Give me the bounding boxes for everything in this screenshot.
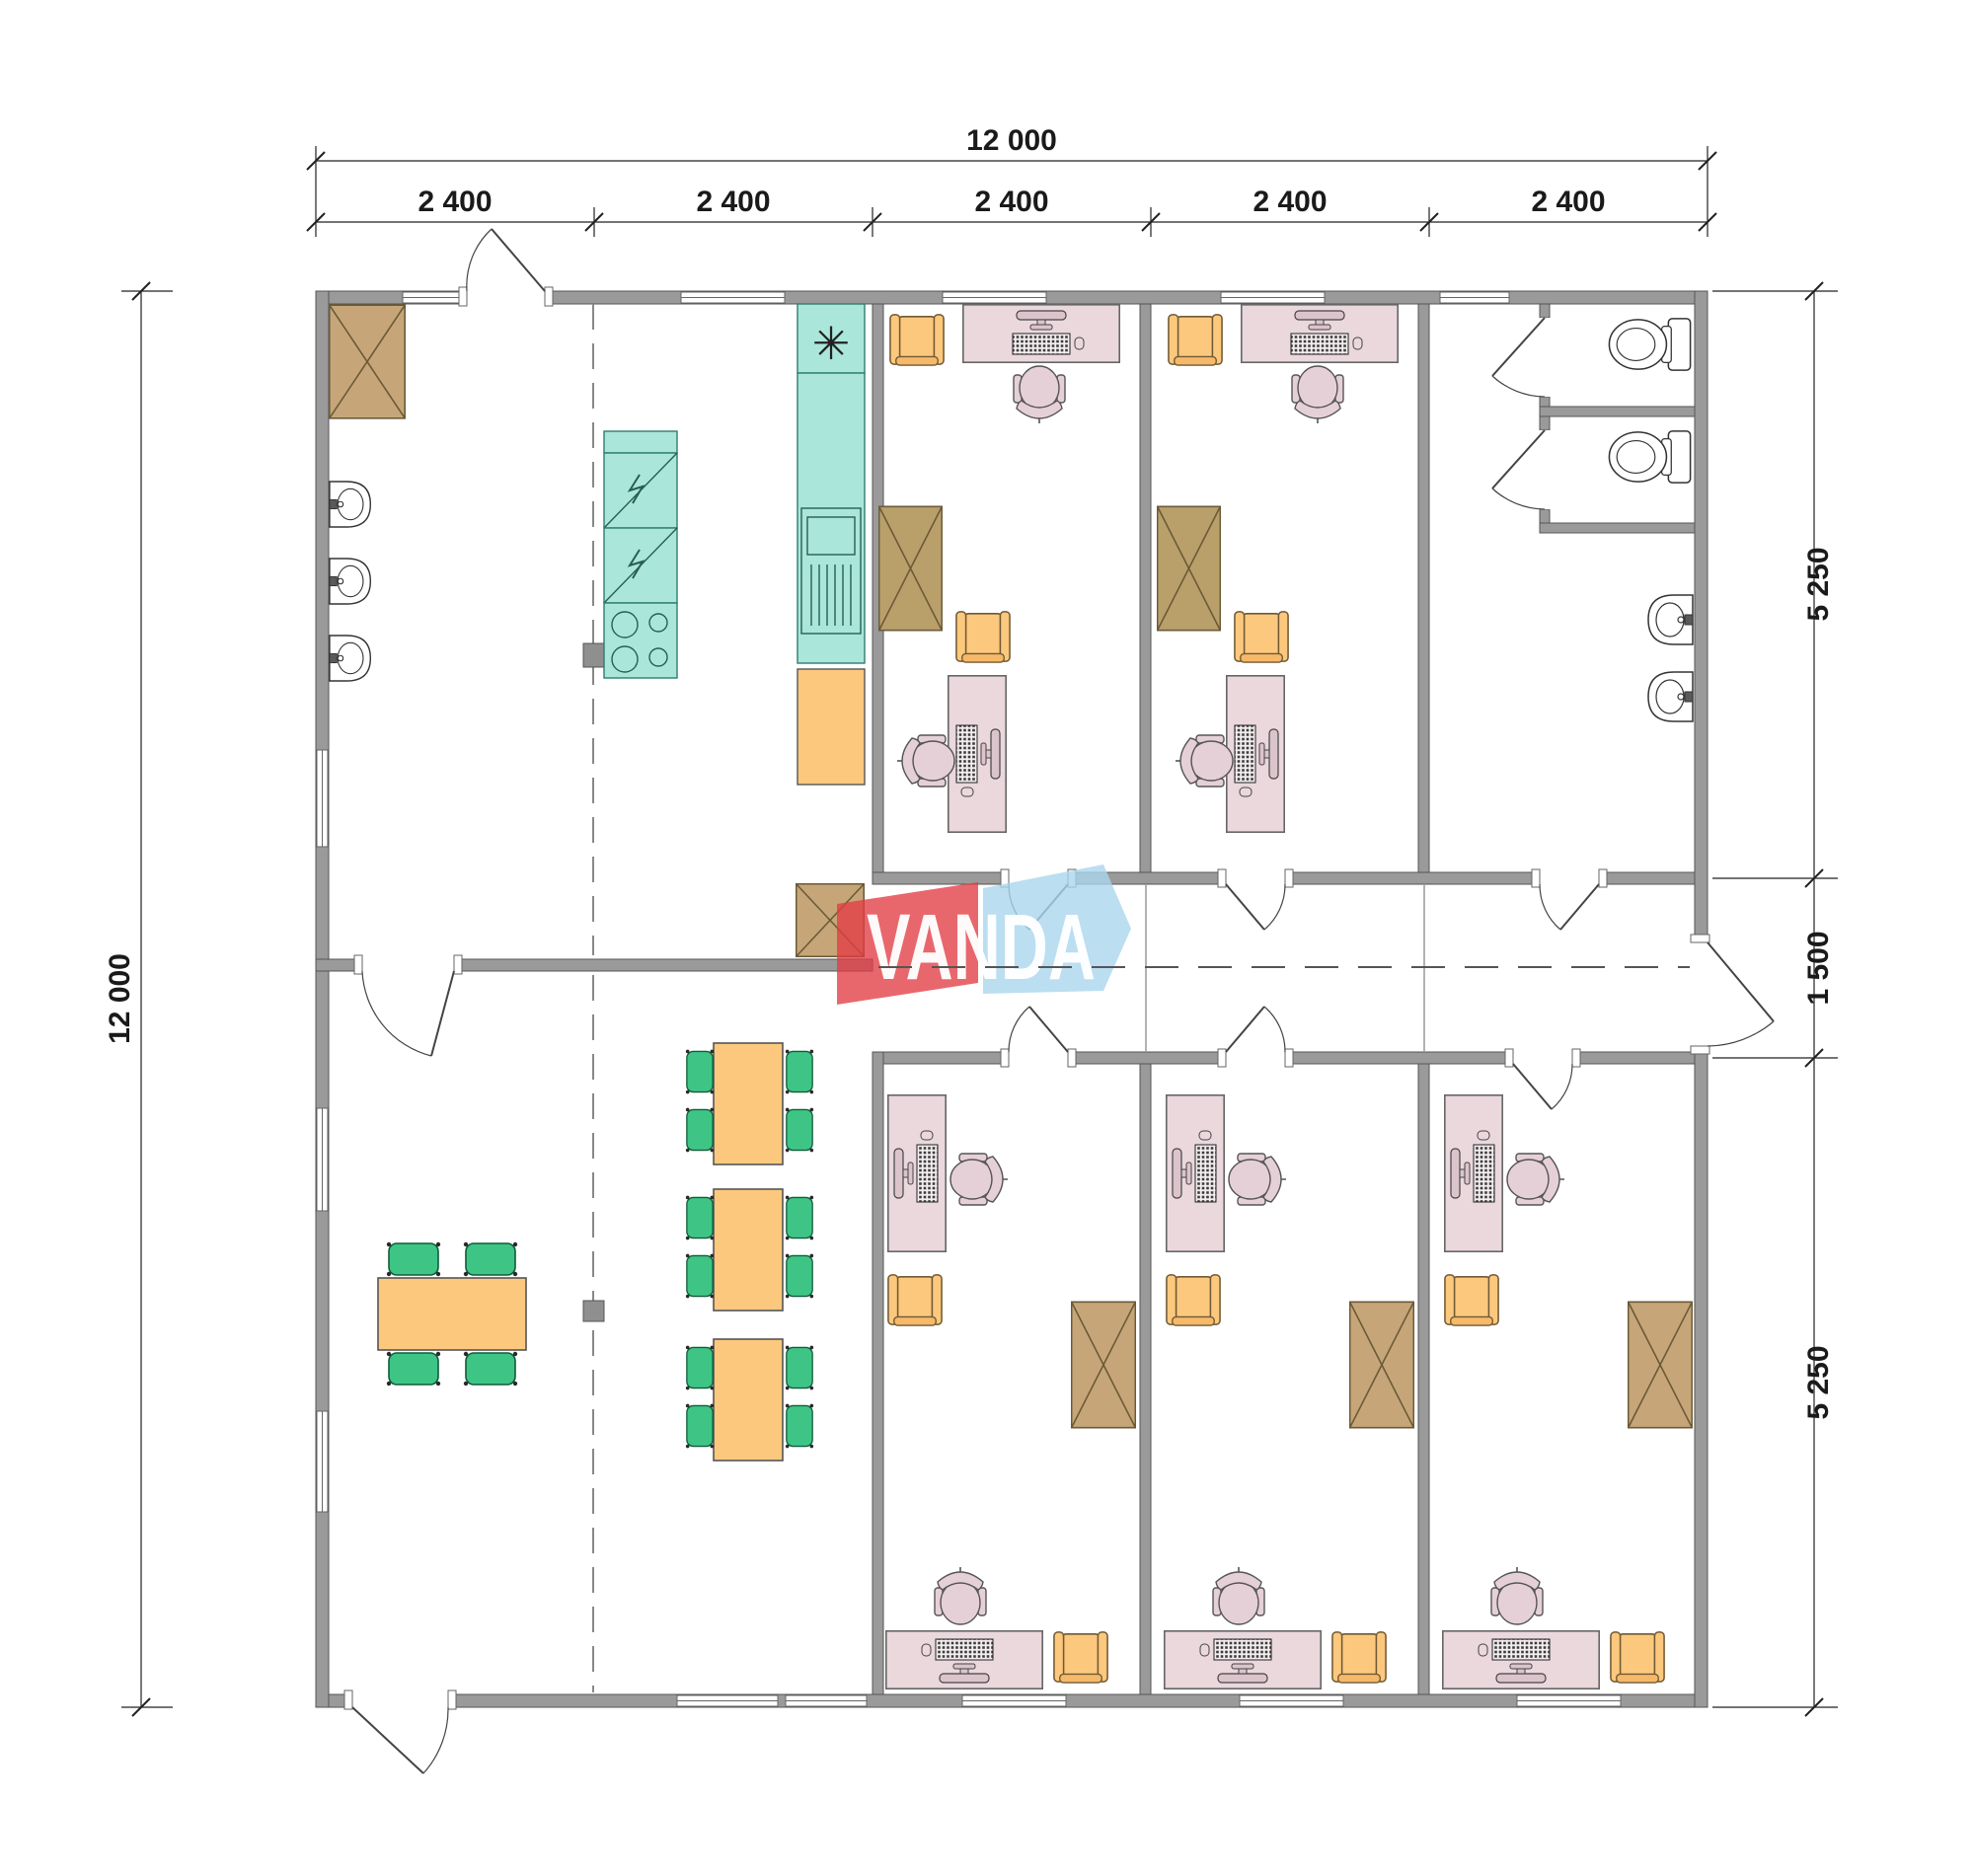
dim-left-total-label: 12 000 [104,953,136,1044]
room-dining [378,1043,813,1461]
dining-chair [387,1242,440,1276]
visitor-armchair [956,612,1010,662]
office-chair [1507,1154,1564,1205]
vanda-logo-text: VANDA [867,895,1096,1000]
wc-stall-bottom-wall [1540,523,1695,533]
office-chair [1292,366,1343,423]
dining-table [714,1189,783,1311]
washbasin [1648,672,1693,721]
window [786,1695,867,1706]
computer-desk [963,305,1119,362]
office-chair [1213,1567,1264,1624]
dining-chair [786,1346,813,1390]
window [1440,292,1509,303]
visitor-armchair [1611,1632,1664,1683]
dining-chair [686,1404,714,1449]
dim-module-label: 2 400 [418,186,492,218]
window [677,1695,778,1706]
visitor-armchair [890,315,944,365]
entry-door-kitchen [467,229,545,291]
dining-chair [686,1050,714,1094]
toilet [1609,319,1690,370]
dining-chair [686,1254,714,1299]
wall-officeD-officeE [1140,1064,1151,1694]
visitor-armchair [1169,315,1222,365]
floor-plan-page: ✳ [0,0,1974,1876]
wardrobe-crossed-box [1158,506,1221,630]
window [1240,1695,1343,1706]
stove [604,603,677,678]
column-marker [583,643,605,667]
doors [352,229,1774,1773]
wc-stall-front-wall [1540,304,1550,318]
wardrobe-crossed-box [1629,1302,1693,1427]
door-office-d [1009,1007,1068,1052]
cabinet-crossed-box [330,305,405,418]
room-sanitary [1492,318,1693,721]
column-marker [583,1301,604,1321]
window [1221,292,1325,303]
dining-table [378,1278,526,1350]
wc-stall-doors [1492,318,1545,509]
office-chair [897,735,954,787]
window [681,292,785,303]
door-office-e [1226,1007,1285,1052]
dining-chair [464,1242,517,1276]
window [317,1108,328,1211]
wc-stall-divider-wall [1540,407,1695,416]
office-chair [1176,735,1233,787]
vanda-logo: VANDA [837,864,1131,1005]
computer-desk [1242,305,1398,362]
door-kitchen-dining [362,971,454,1056]
visitor-armchair [1445,1275,1498,1325]
computer-desk [949,676,1006,832]
dining-chair [464,1352,517,1386]
washbasin [330,559,370,604]
window [1517,1695,1621,1706]
dining-chair [786,1050,813,1094]
main-entrance-door [1708,942,1774,1046]
dining-table [714,1043,783,1164]
dining-chair [387,1352,440,1386]
wardrobe-crossed-box [879,506,943,630]
dining-chair [686,1346,714,1390]
dim-top-total-label: 12 000 [966,124,1057,157]
kitchen-cabinet [604,431,677,453]
visitor-armchair [1332,1632,1386,1683]
dim-right-label: 5 250 [1802,1345,1835,1419]
window [317,750,328,847]
dim-module-label: 2 400 [1253,186,1327,218]
computer-desk [888,1095,946,1251]
computer-desk [1443,1631,1599,1688]
dining-chair [686,1108,714,1153]
wardrobe-crossed-box [1350,1302,1414,1427]
window [943,292,1046,303]
toilet [1609,431,1690,483]
refrigerator [604,453,677,528]
dim-module-label: 2 400 [1531,186,1605,218]
refrigerator [604,528,677,603]
office-chair [1014,366,1065,423]
kitchen-counter-column: ✳ [797,304,865,663]
extractor-star-icon: ✳ [812,318,851,369]
computer-desk [1167,1095,1224,1251]
room-office-e [1165,1095,1414,1688]
dim-right-label: 1 500 [1802,931,1835,1005]
office-chair [1491,1567,1543,1624]
wardrobe-crossed-box [1072,1302,1136,1427]
door-office-b [1226,884,1285,930]
dining-chair [786,1196,813,1240]
visitor-armchair [888,1275,942,1325]
floor-plan-drawing: ✳ [0,0,1974,1876]
door-office-f [1513,1064,1572,1109]
visitor-armchair [1235,612,1288,662]
room-office-a [879,305,1120,832]
dining-table [714,1339,783,1461]
washbasin [330,636,370,681]
dim-module-label: 2 400 [696,186,770,218]
computer-desk [1165,1631,1321,1688]
window [403,292,464,303]
door-sanitary [1540,884,1599,930]
wall-officeE-officeF [1418,1064,1429,1694]
window [317,1411,328,1512]
computer-desk [886,1631,1042,1688]
room-office-b [1158,305,1399,832]
washbasin [330,482,370,527]
office-chair [935,1567,986,1624]
kitchen-side-table [797,669,865,785]
exit-door-dining [352,1707,448,1773]
computer-desk [1227,676,1284,832]
computer-desk [1445,1095,1502,1251]
room-office-f [1443,1095,1693,1688]
office-chair [950,1154,1008,1205]
washbasin [1648,595,1693,644]
wall-officeA-officeB [1140,304,1151,884]
dining-chair [786,1254,813,1299]
dim-right-label: 5 250 [1802,547,1835,621]
dim-module-label: 2 400 [974,186,1048,218]
dining-chair [786,1404,813,1449]
room-office-d [886,1095,1136,1688]
wall-officeB-sanitary [1418,304,1429,884]
wall-dining-officeD [873,1052,883,1694]
office-chair [1229,1154,1286,1205]
visitor-armchair [1054,1632,1107,1683]
kitchen-appliance-column [604,431,677,678]
room-kitchen-washroom: ✳ [330,304,865,956]
window [962,1695,1066,1706]
dining-chair [786,1108,813,1153]
visitor-armchair [1167,1275,1220,1325]
dining-chair [686,1196,714,1240]
